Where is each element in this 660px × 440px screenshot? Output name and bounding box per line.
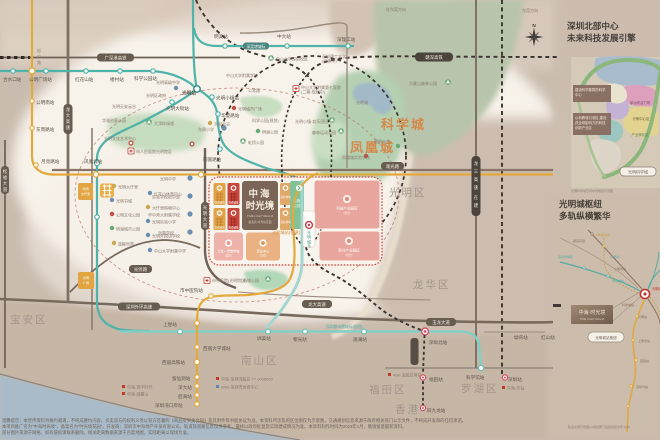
svg-text:大雁山森林公园: 大雁山森林公园 bbox=[409, 80, 437, 86]
svg-text:部分图片来源于网络，如有侵权请联系删除。相关距离数据来源于百: 部分图片来源于网络，如有侵权请联系删除。相关距离数据来源于百度地图，实际距离以现… bbox=[2, 429, 191, 436]
svg-text:白: 白 bbox=[37, 53, 41, 59]
svg-text:TIME LIGHT REALM: TIME LIGHT REALM bbox=[580, 317, 604, 321]
svg-text:红花山体育中心: 红花山体育中心 bbox=[154, 191, 182, 197]
svg-text:华强创意公园: 华强创意公园 bbox=[102, 117, 126, 123]
svg-text:科技产业园区: 科技产业园区 bbox=[336, 206, 358, 211]
svg-text:龙: 龙 bbox=[66, 106, 71, 113]
svg-text:西丽站: 西丽站 bbox=[640, 358, 649, 363]
svg-text:产业转化区: 产业转化区 bbox=[632, 132, 650, 137]
svg-text:留仙洞站: 留仙洞站 bbox=[172, 375, 191, 382]
svg-text:宝安区: 宝安区 bbox=[10, 313, 48, 326]
svg-text:(规划): (规划) bbox=[344, 211, 351, 215]
svg-text:光明小镇·欢乐田园: 光明小镇·欢乐田园 bbox=[295, 118, 328, 124]
svg-text:上屋北站: 上屋北站 bbox=[638, 338, 650, 343]
svg-text:公常路: 公常路 bbox=[248, 87, 260, 93]
svg-text:黎光站: 黎光站 bbox=[293, 336, 307, 343]
svg-text:碧眼水库: 碧眼水库 bbox=[374, 138, 390, 144]
svg-text:光明书城: 光明书城 bbox=[116, 198, 132, 204]
svg-text:东周路站: 东周路站 bbox=[36, 126, 55, 133]
svg-text:光: 光 bbox=[203, 204, 208, 211]
svg-text:深大站: 深大站 bbox=[178, 384, 192, 391]
svg-text:光明外国语学校: 光明外国语学校 bbox=[152, 233, 180, 239]
svg-text:中海: 中海 bbox=[248, 188, 271, 200]
svg-text:高: 高 bbox=[474, 176, 479, 183]
svg-text:6号线支线: 6号线支线 bbox=[596, 232, 610, 237]
svg-text:凤凰城站: 凤凰城站 bbox=[612, 278, 624, 283]
svg-text:中山大学附属学校: 中山大学附属学校 bbox=[226, 72, 258, 78]
svg-text:光明中学: 光明中学 bbox=[160, 176, 176, 182]
svg-text:(二期·规划中): (二期·规划中) bbox=[301, 89, 326, 95]
svg-text:多轨纵横繁华: 多轨纵横繁华 bbox=[559, 210, 611, 221]
svg-text:凤凰城站: 凤凰城站 bbox=[84, 158, 103, 165]
svg-text:西丽大学城站: 西丽大学城站 bbox=[203, 345, 231, 352]
svg-text:道: 道 bbox=[203, 222, 208, 229]
svg-text:深圳站: 深圳站 bbox=[508, 376, 522, 383]
svg-text:13号线: 13号线 bbox=[610, 254, 619, 259]
svg-text:坳背站: 坳背站 bbox=[514, 334, 528, 341]
svg-text:明美站: 明美站 bbox=[214, 33, 228, 40]
svg-text:科学城: 科学城 bbox=[381, 117, 426, 132]
svg-text:以科教城引领区,建设: 以科教城引领区,建设 bbox=[575, 115, 607, 120]
svg-text:具全球影响力的科技: 具全球影响力的科技 bbox=[575, 120, 606, 125]
svg-text:赣深高铁: 赣深高铁 bbox=[425, 54, 443, 61]
svg-text:建设科学集群的科学: 建设科学集群的科学 bbox=[575, 87, 606, 92]
svg-text:光明天安云谷: 光明天安云谷 bbox=[112, 103, 136, 109]
svg-text:赣深高铁: 赣深高铁 bbox=[573, 238, 585, 243]
svg-text:天安云谷: 天安云谷 bbox=[214, 121, 230, 127]
svg-text:(在建中): (在建中) bbox=[322, 58, 337, 64]
svg-text:香港: 香港 bbox=[395, 404, 420, 416]
svg-text:观光路: 观光路 bbox=[386, 163, 400, 170]
svg-text:大: 大 bbox=[203, 216, 208, 223]
svg-text:公明文化公园: 公明文化公园 bbox=[116, 212, 140, 218]
svg-text:三: 三 bbox=[474, 169, 479, 174]
svg-text:松: 松 bbox=[3, 168, 8, 175]
svg-text:明湖城市公园: 明湖城市公园 bbox=[116, 226, 140, 232]
svg-text:公明北站: 公明北站 bbox=[614, 266, 626, 271]
svg-text:W00·深圳湾体育中心: W00·深圳湾体育中心 bbox=[221, 384, 259, 390]
svg-text:深圳北站: 深圳北站 bbox=[429, 339, 448, 346]
svg-text:虹桥公园: 虹桥公园 bbox=[248, 139, 264, 145]
svg-text:备案名:时光境花园: 备案名:时光境花园 bbox=[248, 220, 271, 224]
svg-text:森林运动公园: 森林运动公园 bbox=[312, 129, 336, 135]
svg-text:中海·寰宇时代: 中海·寰宇时代 bbox=[127, 384, 152, 390]
svg-text:光明高级中学: 光明高级中学 bbox=[156, 79, 180, 85]
svg-text:站: 站 bbox=[308, 244, 311, 248]
svg-text:光明文化艺术中心: 光明文化艺术中心 bbox=[104, 135, 136, 141]
svg-text:光明大仟里: 光明大仟里 bbox=[118, 184, 138, 190]
svg-text:光明科学城: 光明科学城 bbox=[628, 169, 648, 175]
svg-text:光明区: 光明区 bbox=[389, 186, 427, 199]
svg-text:中山大学深圳校区: 中山大学深圳校区 bbox=[276, 56, 308, 62]
svg-text:TIME LIGHT REALM: TIME LIGHT REALM bbox=[247, 214, 274, 218]
svg-text:科学公园(规划): 科学公园(规划) bbox=[252, 117, 279, 123]
svg-text:中海·天钻: 中海·天钻 bbox=[507, 385, 524, 391]
svg-text:后海站: 后海站 bbox=[178, 393, 192, 400]
svg-text:在售楼栋: 在售楼栋 bbox=[228, 226, 239, 230]
svg-text:光明区政府: 光明区政府 bbox=[146, 92, 166, 98]
svg-text:旧九龙站: 旧九龙站 bbox=[427, 407, 446, 414]
svg-text:同富路站: 同富路站 bbox=[203, 156, 222, 163]
svg-text:深莞增城际: 深莞增城际 bbox=[558, 254, 573, 259]
svg-text:高: 高 bbox=[66, 118, 71, 125]
svg-text:新城公园: 新城公园 bbox=[243, 277, 259, 283]
svg-text:光明站: 光明站 bbox=[638, 314, 647, 319]
svg-text:光明城市广场: 光明城市广场 bbox=[238, 106, 262, 112]
svg-text:中海·深圳湾超总 T7 0000000: 中海·深圳湾超总 T7 0000000 bbox=[221, 376, 274, 382]
svg-text:华中师大附属学校: 华中师大附属学校 bbox=[148, 212, 180, 218]
svg-text:往东莞方向: 往东莞方向 bbox=[386, 6, 406, 12]
svg-text:在售楼栋: 在售楼栋 bbox=[228, 201, 239, 205]
svg-text:华夏路站: 华夏路站 bbox=[221, 112, 240, 119]
svg-text:光明城站枢纽: 光明城站枢纽 bbox=[595, 335, 617, 340]
svg-text:商业地块: 商业地块 bbox=[280, 195, 291, 199]
svg-text:创新产业区: 创新产业区 bbox=[575, 125, 593, 130]
svg-text:东莞方向: 东莞方向 bbox=[522, 7, 538, 13]
svg-text:茅洲河活力带: 茅洲河活力带 bbox=[630, 100, 651, 105]
svg-text:(规划): (规划) bbox=[260, 254, 267, 258]
svg-text:大仟里购物中心: 大仟里购物中心 bbox=[152, 205, 180, 211]
svg-text:公明广场站: 公明广场站 bbox=[29, 76, 52, 83]
svg-text:深圳北部中心: 深圳北部中心 bbox=[567, 20, 619, 31]
svg-text:圳美站: 圳美站 bbox=[257, 335, 271, 342]
svg-text:光明: 光明 bbox=[82, 186, 88, 191]
svg-text:楼村站: 楼村站 bbox=[110, 76, 124, 83]
svg-text:大: 大 bbox=[66, 112, 71, 119]
svg-text:中大站: 中大站 bbox=[277, 33, 291, 40]
svg-text:观澜站: 观澜站 bbox=[353, 336, 367, 343]
svg-text:科学公园站: 科学公园站 bbox=[134, 75, 157, 82]
svg-text:光明科学城空间布局规划示意图: 光明科学城空间布局规划示意图 bbox=[571, 188, 613, 193]
svg-text:广场: 广场 bbox=[83, 280, 89, 285]
svg-text:福田区: 福田区 bbox=[369, 383, 407, 396]
svg-text:光明实验小学: 光明实验小学 bbox=[152, 219, 176, 225]
svg-text:未来科技发展引擎: 未来科技发展引擎 bbox=[566, 32, 636, 43]
svg-text:轨道交通示意图(以规划部门最终批复文件为准): 轨道交通示意图(以规划部门最终批复文件为准) bbox=[568, 424, 630, 429]
svg-text:科学馆站: 科学馆站 bbox=[466, 374, 485, 381]
svg-text:光明: 光明 bbox=[83, 275, 89, 280]
svg-text:明湖公园: 明湖公园 bbox=[262, 129, 278, 135]
svg-text:中山大学附属中学: 中山大学附属中学 bbox=[154, 248, 186, 254]
svg-text:深圳外环高速: 深圳外环高速 bbox=[126, 304, 153, 311]
svg-text:光明城站(在建): 光明城站(在建) bbox=[272, 229, 301, 236]
svg-text:龙华区: 龙华区 bbox=[413, 278, 451, 291]
svg-text:玉龙大道: 玉龙大道 bbox=[432, 319, 450, 326]
svg-text:深圳湾站: 深圳湾站 bbox=[636, 384, 648, 389]
svg-text:道: 道 bbox=[3, 186, 8, 193]
svg-text:(规划): (规划) bbox=[225, 254, 232, 258]
svg-text:上屋站: 上屋站 bbox=[163, 321, 177, 328]
svg-text:罗湖区: 罗湖区 bbox=[461, 383, 499, 395]
svg-text:光明城站: 光明城站 bbox=[652, 286, 660, 291]
svg-text:本项目推广名为“中海时光境”，备案名为“时光境花园”。开发商: 本项目推广名为“中海时光境”，备案名为“时光境花园”。开发商：深圳市中海地产开发… bbox=[2, 423, 406, 430]
svg-text:福: 福 bbox=[3, 174, 8, 181]
svg-text:温馨提示：本宣传资料为要约邀请，不构成要约内容。买卖双方的权: 温馨提示：本宣传资料为要约邀请，不构成要约内容。买卖双方的权利义务以双方签署的《… bbox=[2, 417, 466, 424]
svg-text:光明中心区: 光明中心区 bbox=[633, 116, 651, 121]
svg-text:中心: 中心 bbox=[575, 92, 582, 97]
svg-text:凤凰城实验学校: 凤凰城实验学校 bbox=[342, 154, 370, 160]
svg-text:光侨路: 光侨路 bbox=[134, 266, 148, 273]
svg-text:住宅地块: 住宅地块 bbox=[214, 201, 225, 205]
svg-text:公明南站: 公明南站 bbox=[36, 99, 55, 106]
svg-text:光明城枢纽: 光明城枢纽 bbox=[558, 198, 602, 209]
svg-text:40K·深超总项目: 40K·深超总项目 bbox=[393, 372, 421, 378]
svg-text:大仟里: 大仟里 bbox=[81, 191, 90, 196]
svg-text:深圳湾口岸站: 深圳湾口岸站 bbox=[155, 402, 183, 409]
svg-text:深莞增城际: 深莞增城际 bbox=[247, 44, 266, 49]
svg-text:大顶岭绿道: 大顶岭绿道 bbox=[154, 120, 174, 126]
svg-text:大: 大 bbox=[3, 180, 8, 187]
svg-text:东周小学: 东周小学 bbox=[198, 126, 214, 132]
svg-text:光明站: 光明站 bbox=[181, 90, 196, 97]
svg-text:(规划): (规划) bbox=[346, 253, 353, 257]
svg-text:城: 城 bbox=[307, 238, 311, 244]
svg-text:福田站: 福田站 bbox=[429, 376, 443, 383]
svg-text:蓝鲸世界: 蓝鲸世界 bbox=[118, 241, 134, 247]
svg-text:九年一贯制学校: 九年一贯制学校 bbox=[217, 249, 240, 254]
svg-text:红花山站: 红花山站 bbox=[75, 76, 94, 83]
svg-text:西丽高铁站: 西丽高铁站 bbox=[162, 359, 185, 366]
svg-text:时光境: 时光境 bbox=[246, 200, 275, 212]
svg-text:市人民医院光明院区: 市人民医院光明院区 bbox=[136, 148, 172, 154]
svg-text:商业中心: 商业中心 bbox=[257, 249, 271, 254]
svg-text:中海·阅麓山: 中海·阅麓山 bbox=[127, 391, 148, 397]
svg-text:商业地块: 商业地块 bbox=[280, 220, 291, 224]
svg-text:科学城站: 科学城站 bbox=[622, 302, 634, 307]
svg-text:中海·时光境: 中海·时光境 bbox=[579, 309, 606, 316]
svg-text:光明湖: 光明湖 bbox=[356, 99, 368, 105]
svg-text:在: 在 bbox=[474, 194, 479, 200]
svg-text:深理工站: 深理工站 bbox=[337, 36, 356, 43]
svg-text:深圳都市圈城际(规划): 深圳都市圈城际(规划) bbox=[326, 324, 363, 329]
svg-text:松: 松 bbox=[37, 47, 41, 53]
svg-text:龙: 龙 bbox=[474, 160, 479, 167]
svg-text:市中医院站: 市中医院站 bbox=[180, 287, 203, 294]
svg-text:建: 建 bbox=[474, 202, 479, 209]
svg-text:新兴产业园区: 新兴产业园区 bbox=[338, 248, 360, 253]
svg-text:合水口站: 合水口站 bbox=[3, 76, 22, 83]
svg-text:光明大街站: 光明大街站 bbox=[166, 105, 189, 112]
svg-text:红山站: 红山站 bbox=[541, 334, 555, 341]
svg-text:龙大高速: 龙大高速 bbox=[308, 301, 326, 308]
svg-text:路: 路 bbox=[37, 59, 41, 65]
svg-text:广深港高铁: 广深港高铁 bbox=[105, 55, 128, 62]
svg-text:南山区: 南山区 bbox=[241, 354, 279, 367]
svg-text:住宅地块: 住宅地块 bbox=[214, 226, 225, 230]
svg-text:光明小镇站: 光明小镇站 bbox=[216, 95, 239, 102]
svg-text:月亮路站: 月亮路站 bbox=[41, 158, 60, 165]
